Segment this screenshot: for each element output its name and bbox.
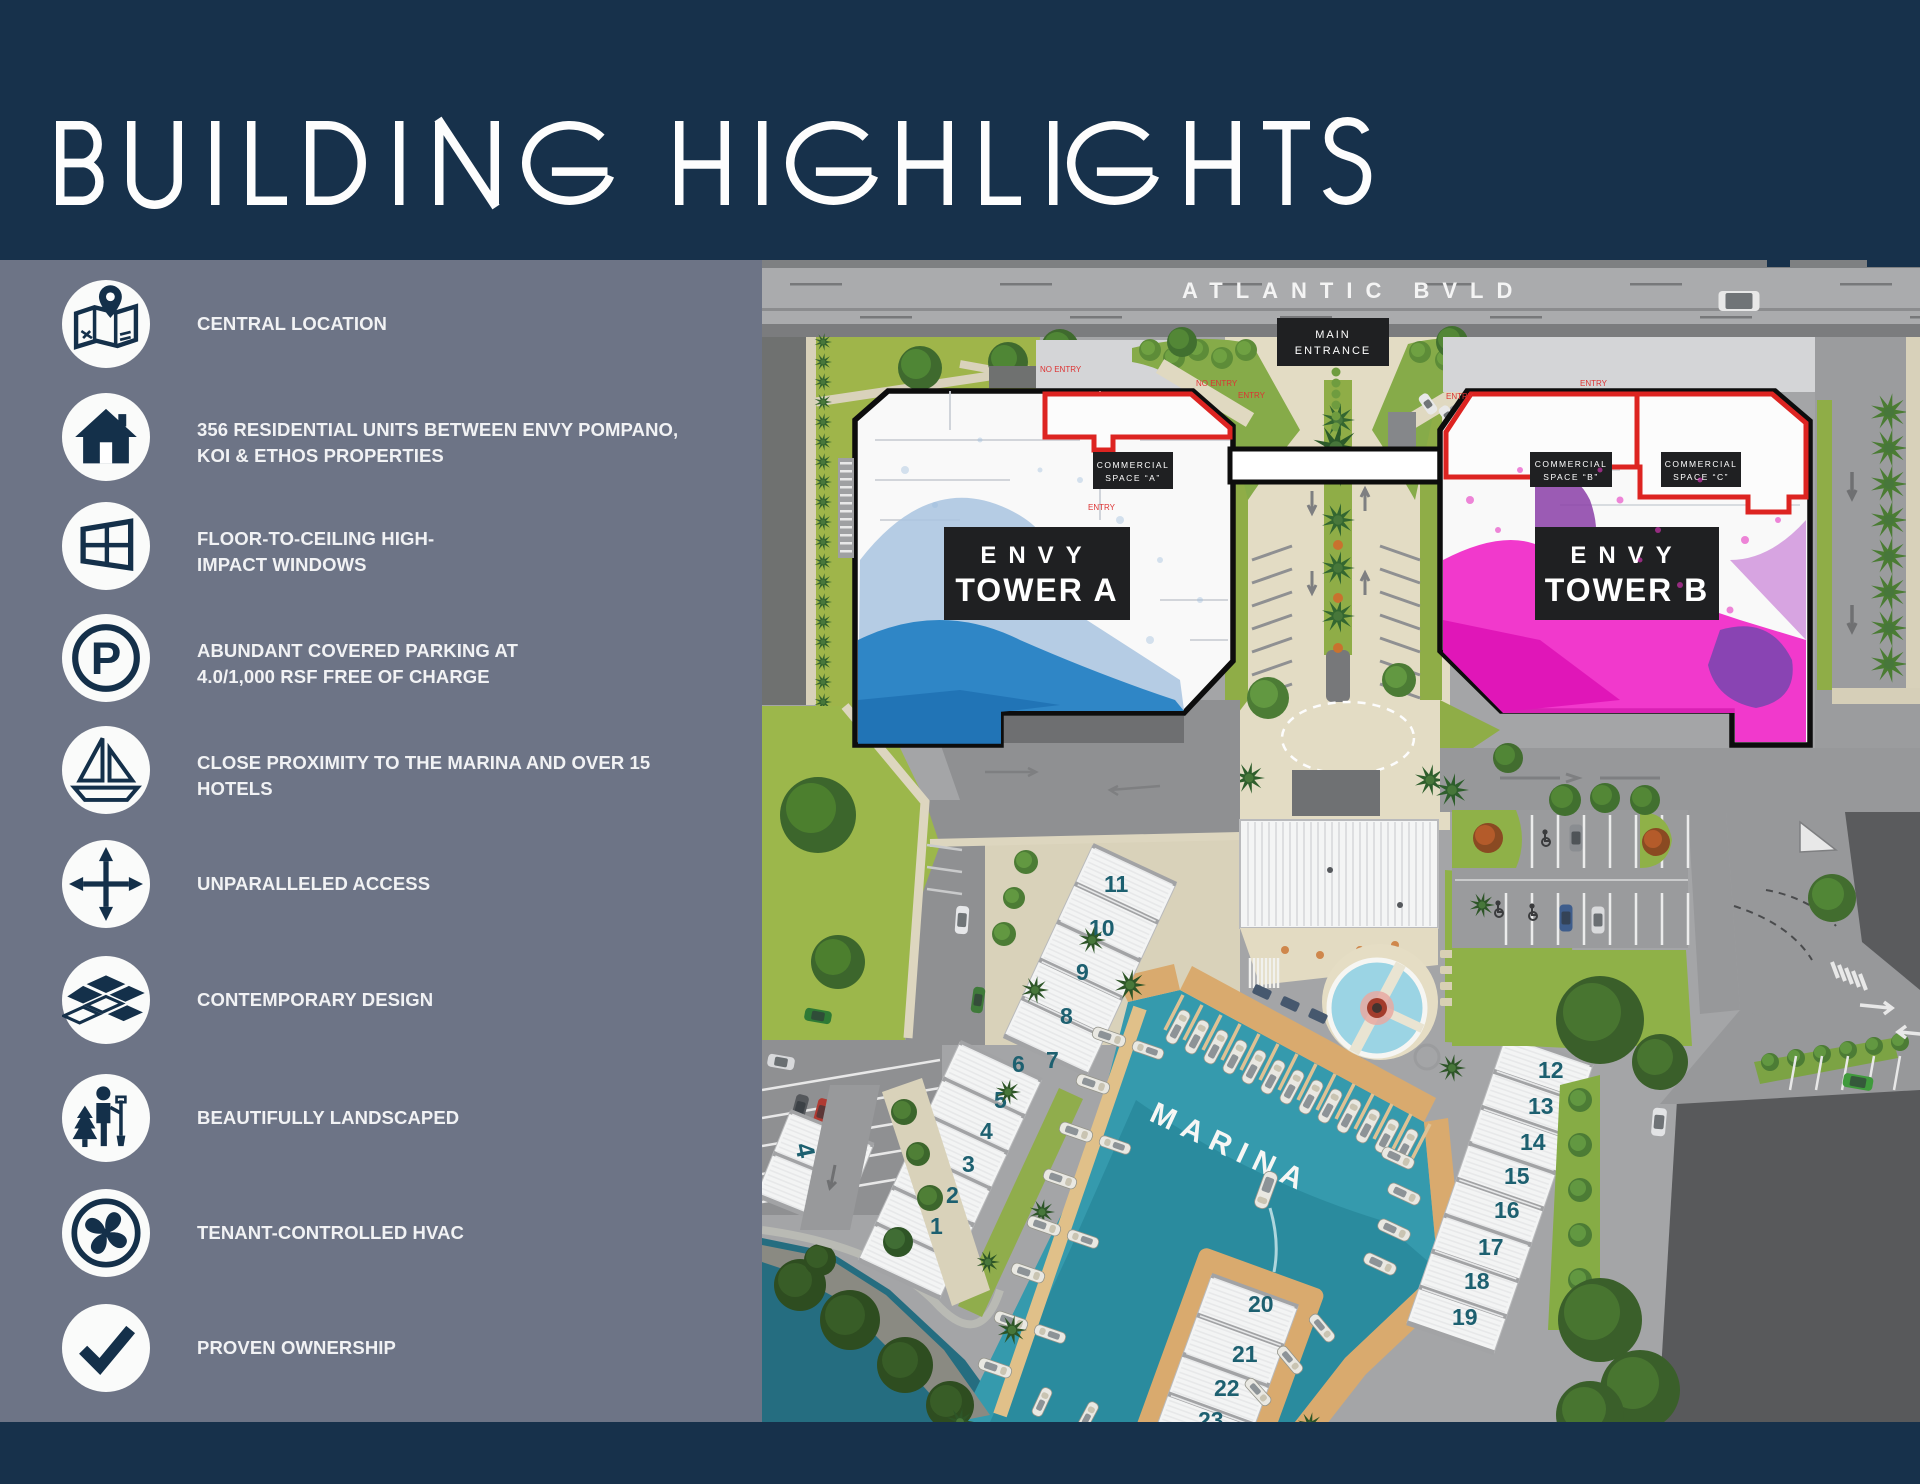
svg-text:SPACE “A”: SPACE “A” xyxy=(1105,473,1160,483)
svg-text:P: P xyxy=(91,633,122,684)
svg-text:9: 9 xyxy=(1076,959,1089,985)
svg-text:ATLANTIC BVLD: ATLANTIC BVLD xyxy=(1182,278,1525,303)
svg-text:1: 1 xyxy=(930,1213,943,1239)
svg-text:18: 18 xyxy=(1464,1268,1490,1294)
svg-text:ENTRY: ENTRY xyxy=(1446,392,1474,401)
svg-text:21: 21 xyxy=(1232,1341,1258,1367)
svg-text:13: 13 xyxy=(1528,1093,1554,1119)
svg-text:NO ENTRY: NO ENTRY xyxy=(1040,365,1082,374)
svg-text:COMMERCIAL: COMMERCIAL xyxy=(1535,459,1608,469)
svg-text:NO ENTRY: NO ENTRY xyxy=(1196,379,1238,388)
svg-text:17: 17 xyxy=(1478,1234,1504,1260)
svg-text:8: 8 xyxy=(1060,1003,1073,1029)
svg-text:2: 2 xyxy=(946,1182,959,1208)
svg-text:6: 6 xyxy=(1012,1051,1025,1077)
svg-text:19: 19 xyxy=(1452,1304,1478,1330)
svg-text:15: 15 xyxy=(1504,1163,1530,1189)
svg-text:COMMERCIAL: COMMERCIAL xyxy=(1665,459,1738,469)
svg-text:ENVY: ENVY xyxy=(980,542,1093,569)
svg-text:ENTRY: ENTRY xyxy=(1580,379,1608,388)
svg-text:COMMERCIAL: COMMERCIAL xyxy=(1097,460,1170,470)
svg-text:22: 22 xyxy=(1214,1375,1240,1401)
svg-text:ENVY: ENVY xyxy=(1570,542,1683,569)
svg-text:4: 4 xyxy=(980,1118,993,1144)
svg-text:ENTRANCE: ENTRANCE xyxy=(1295,345,1372,357)
svg-text:12: 12 xyxy=(1538,1057,1564,1083)
svg-text:20: 20 xyxy=(1248,1291,1274,1317)
svg-text:23: 23 xyxy=(1198,1407,1224,1422)
svg-text:MAIN: MAIN xyxy=(1315,329,1351,341)
svg-text:3: 3 xyxy=(962,1151,975,1177)
svg-text:ENTRY: ENTRY xyxy=(1238,391,1266,400)
svg-text:11: 11 xyxy=(1104,871,1129,897)
svg-text:TOWER B: TOWER B xyxy=(1545,572,1710,608)
svg-text:SPACE “B”: SPACE “B” xyxy=(1543,472,1598,482)
svg-text:ENTRY: ENTRY xyxy=(1088,503,1116,512)
svg-text:7: 7 xyxy=(1046,1047,1059,1073)
svg-text:14: 14 xyxy=(1520,1129,1546,1155)
svg-text:16: 16 xyxy=(1494,1197,1520,1223)
svg-text:TOWER A: TOWER A xyxy=(955,572,1118,608)
